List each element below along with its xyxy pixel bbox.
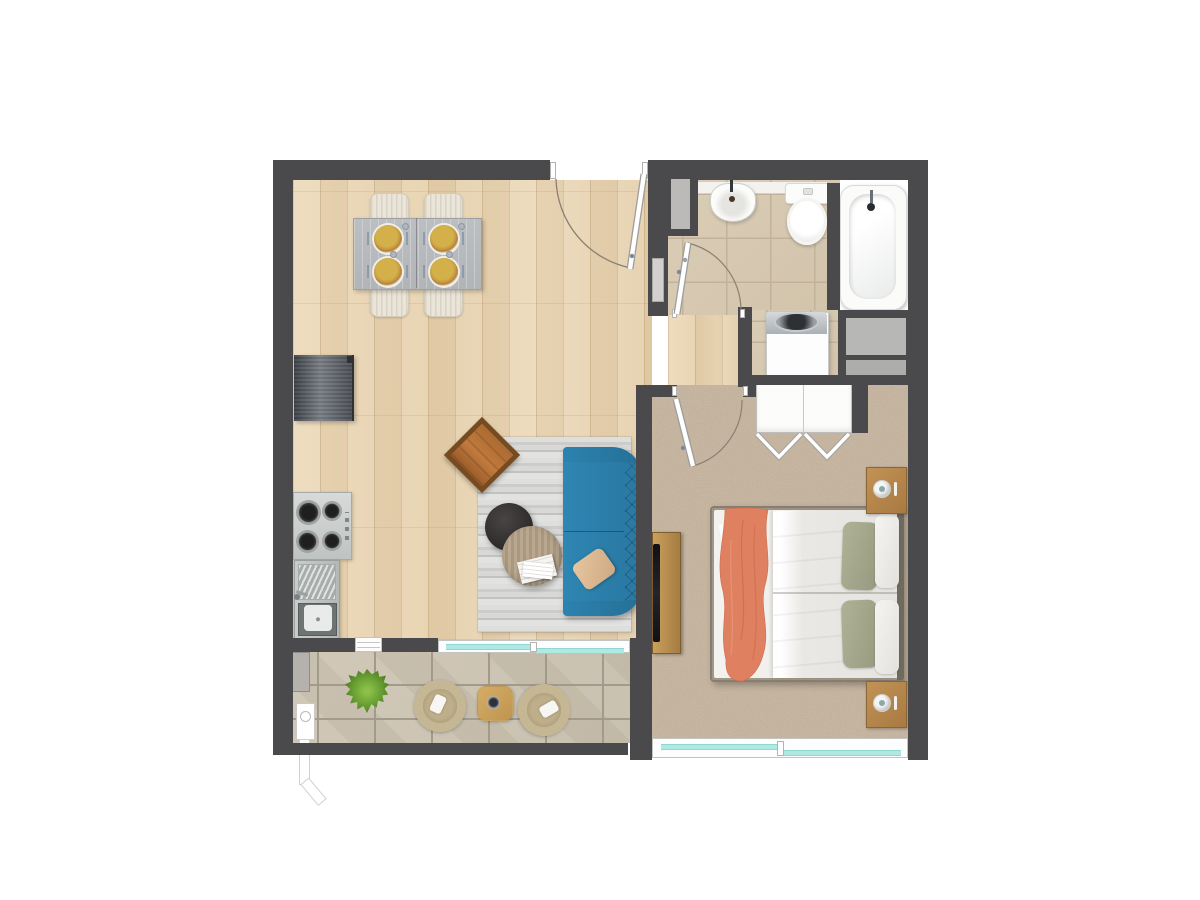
- pass-window-line: [357, 642, 380, 643]
- balcony-railing: [275, 743, 628, 755]
- storage-shelf-small: [846, 360, 906, 375]
- white-pillow-bottom: [875, 600, 899, 674]
- kitchen-faucet-base: [294, 594, 300, 600]
- wall-top-left: [273, 160, 550, 180]
- drinking-glass: [403, 224, 408, 229]
- drinking-glass: [447, 252, 452, 257]
- slider-glass-left: [446, 644, 531, 650]
- magazine-top: [522, 560, 554, 579]
- wall-above-wardrobe: [750, 375, 852, 385]
- place-setting-3: [374, 258, 402, 286]
- entrance-opening: [550, 160, 648, 180]
- cutlery: [406, 265, 408, 278]
- place-setting-4: [430, 258, 458, 286]
- wall-cabinet: [652, 258, 664, 302]
- cutlery: [462, 265, 464, 278]
- lamp-finial: [879, 486, 885, 492]
- sink-basin-inner: [304, 605, 332, 631]
- lamp-finial: [879, 700, 885, 706]
- tray-cup: [732, 559, 742, 569]
- cutlery: [406, 232, 408, 245]
- fridge-handle: [347, 356, 354, 363]
- wardrobe-seam: [803, 384, 804, 432]
- wall-left: [273, 160, 293, 755]
- slider-glass-right: [536, 648, 624, 654]
- green-pillow-bottom: [841, 599, 879, 668]
- burner-4: [324, 533, 340, 549]
- wall-balcony-bedroom: [630, 638, 652, 760]
- slider-mid-post: [530, 642, 537, 652]
- downpipe-elbow: [300, 777, 326, 806]
- table-lamp-top: [874, 481, 890, 497]
- tv: [653, 544, 660, 642]
- wall-living-bedroom: [636, 397, 652, 638]
- kitchen-pass-window: [355, 637, 382, 652]
- cutlery: [423, 265, 425, 278]
- bedroom-door-jamb-left: [672, 386, 677, 396]
- green-pillow-top: [841, 521, 879, 590]
- sofa-seat-seam: [564, 531, 624, 532]
- duvet-center-seam: [773, 592, 897, 594]
- cutlery: [367, 232, 369, 245]
- downpipe-collar: [300, 711, 311, 722]
- washer-drum: [776, 314, 817, 330]
- wall-bedroom-north-left: [636, 385, 677, 397]
- balcony-sliding-door: [438, 640, 630, 653]
- wash-basin: [710, 183, 756, 222]
- bedroom-window-mid-post: [777, 741, 784, 756]
- wall-tub-divider: [827, 183, 840, 310]
- cutlery: [367, 265, 369, 278]
- table-seam: [416, 218, 417, 288]
- bathroom-door-jamb-right: [740, 309, 745, 318]
- place-setting-2: [430, 225, 458, 253]
- bedroom-window: [652, 738, 908, 758]
- dining-chair-4: [424, 288, 463, 317]
- refrigerator: [294, 355, 354, 421]
- white-pillow-top: [875, 514, 899, 588]
- basin-drain: [729, 196, 735, 202]
- entrance-jamb-right: [642, 162, 648, 179]
- pass-window-line: [357, 647, 380, 648]
- cutlery: [423, 232, 425, 245]
- entrance-jamb-left: [550, 162, 556, 179]
- nightstand-item-bottom: [894, 696, 897, 710]
- toilet-bowl: [787, 198, 827, 245]
- dining-table: [353, 218, 482, 290]
- burner-1: [298, 502, 319, 523]
- place-setting-1: [374, 225, 402, 253]
- nightstand-item-top: [894, 482, 897, 496]
- bedroom-window-glass-right: [783, 750, 901, 756]
- utility-box: [292, 652, 310, 692]
- dining-chair-3: [370, 288, 409, 317]
- floor-plan-canvas: { "title": "Studio apartment floor plan …: [0, 0, 1200, 900]
- cooktop: [293, 492, 352, 560]
- patio-cup: [487, 696, 500, 709]
- storage-shelf-large: [846, 318, 906, 355]
- toilet-flush-button: [803, 188, 813, 195]
- drinking-glass: [391, 252, 396, 257]
- drinking-glass: [459, 224, 464, 229]
- service-shaft: [671, 179, 690, 229]
- table-lamp-bottom: [874, 695, 890, 711]
- stove-knobs: [345, 512, 349, 540]
- tub-faucet: [870, 190, 873, 203]
- wall-right: [908, 160, 928, 760]
- burner-2: [324, 503, 340, 519]
- floor-plan: [273, 160, 928, 760]
- cutlery: [462, 232, 464, 245]
- wardrobe: [756, 383, 852, 433]
- bedroom-door-jamb-right: [743, 386, 748, 396]
- bathroom-door-jamb-left: [672, 309, 677, 318]
- tub-drain: [867, 203, 875, 211]
- basin-faucet: [730, 180, 733, 192]
- open-book: [719, 520, 752, 546]
- burner-3: [298, 532, 317, 551]
- bedroom-window-glass-left: [661, 744, 777, 750]
